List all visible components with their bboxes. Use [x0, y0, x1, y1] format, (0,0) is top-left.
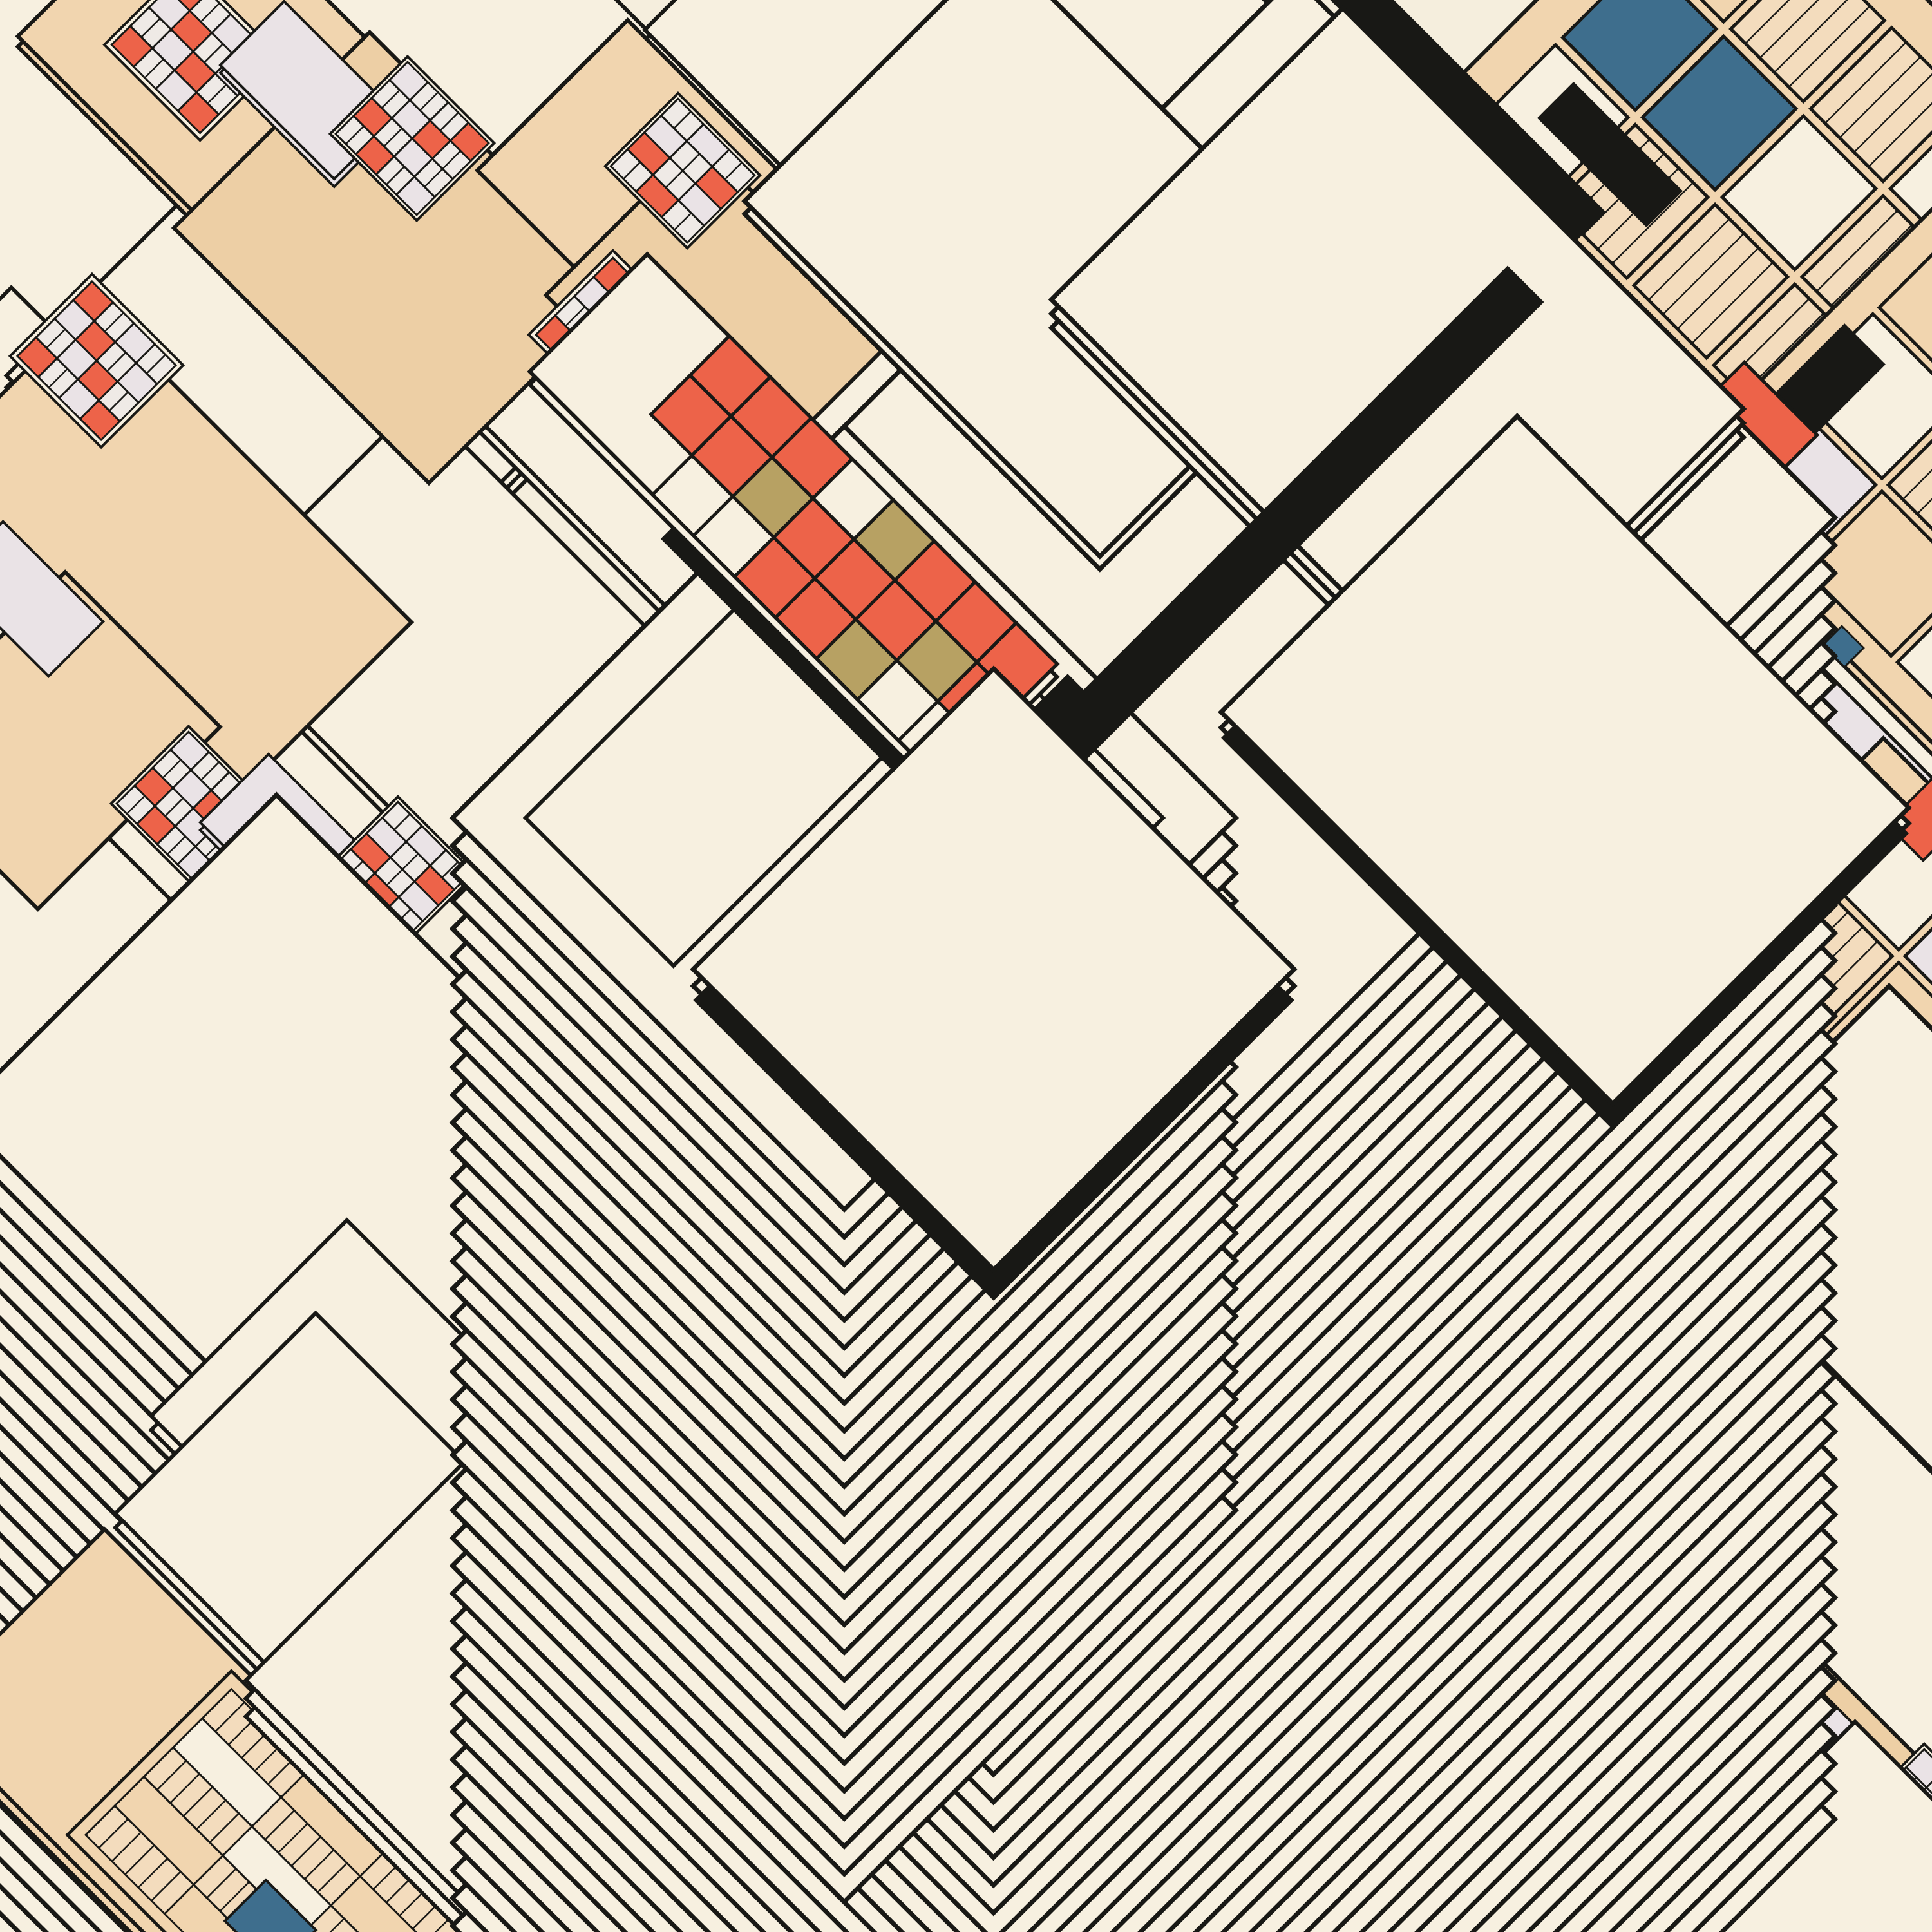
artwork-canvas — [0, 0, 1932, 1932]
generative-artwork — [0, 0, 1932, 1932]
